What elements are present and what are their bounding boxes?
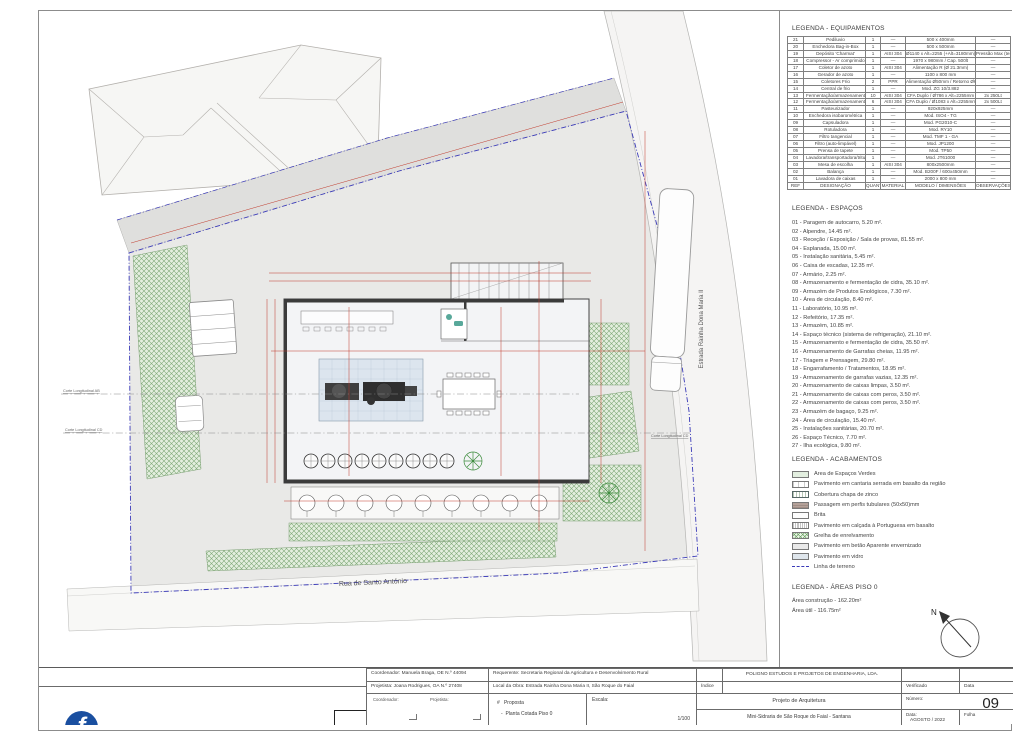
finish-label: Cobertura chapa de zinco bbox=[814, 492, 878, 498]
drawing-sheet: Rua de Santo António Estrada Rainha Dona… bbox=[38, 10, 1012, 731]
equipment-designation: Pediluvio bbox=[804, 37, 866, 44]
section-label-cd-right: Corte Longitudinal CD bbox=[651, 434, 689, 438]
legend-areas-title: LEGENDA - ÁREAS PISO 0 bbox=[792, 584, 878, 591]
equipment-designation: Pasteurizador bbox=[804, 106, 866, 113]
equipment-ref: 02 bbox=[788, 169, 804, 176]
equipment-table-row: 01 Lavadora de caixas 1 — 2000 x 800 mm … bbox=[788, 176, 1011, 183]
space-item: 16 - Armazenamento de Garrafas cheias, 1… bbox=[792, 348, 1007, 357]
finish-item: Pavimento em vidro bbox=[792, 551, 1007, 561]
finish-label: Área de Espaços Verdes bbox=[814, 471, 876, 477]
finish-label: Pavimento em calçada à Portuguesa em bas… bbox=[814, 523, 934, 529]
finish-swatch bbox=[792, 502, 809, 509]
north-compass: N bbox=[929, 606, 991, 666]
equipment-model: Mod. B200F / 600x450mm bbox=[906, 169, 976, 176]
legend-equipment-title: LEGENDA - EQUIPAMENTOS bbox=[792, 25, 885, 32]
equipment-quantity: 1 bbox=[866, 86, 881, 93]
equipment-table-row: 17 Coletor de azoto 1 AISI 304 Alimentaç… bbox=[788, 65, 1011, 72]
equipment-model: Mod. TMF 1 - GA bbox=[906, 134, 976, 141]
equipment-table-row: 09 Capsuladora 1 — Mod. PG2010-C — bbox=[788, 120, 1011, 127]
equipment-table-row: 03 Mesa de escolha 1 AISI 304 800x2500mm… bbox=[788, 162, 1011, 169]
sheet-number: 09 bbox=[982, 695, 999, 709]
date-header-cell: Data bbox=[959, 681, 1013, 693]
equipment-table-row: 08 Rotuladora 1 — Mod. RY10 — bbox=[788, 127, 1011, 134]
equipment-quantity: 1 bbox=[866, 72, 881, 79]
equipment-ref: 11 bbox=[788, 106, 804, 113]
finish-swatch bbox=[792, 491, 809, 498]
equipment-ref: 01 bbox=[788, 176, 804, 183]
finish-swatch bbox=[792, 566, 809, 567]
equipment-model: CFA Duplo / Ø1083 x Alt=2255mm bbox=[906, 99, 976, 106]
equipment-material: — bbox=[881, 72, 906, 79]
equipment-model: 1970 x 980mm / Cap. 500lt bbox=[906, 58, 976, 65]
equipment-observations: — bbox=[976, 86, 1011, 93]
equipment-observations: — bbox=[976, 106, 1011, 113]
parked-truck bbox=[189, 300, 237, 357]
street-label-right: Estrada Rainha Dona Maria II bbox=[699, 289, 705, 368]
equipment-designation: Fermentação/armazenamento bbox=[804, 93, 866, 100]
signatures-cell: Coordenador: Projetista: bbox=[366, 693, 488, 725]
equipment-material: — bbox=[881, 44, 906, 51]
equipment-table-row: 10 Enchedora isobarométrica 1 — Mod. ISO… bbox=[788, 113, 1011, 120]
finish-item: Pavimento em betão Aparente envernizado bbox=[792, 541, 1007, 551]
space-item: 23 - Armazém de bagaço, 9.25 m². bbox=[792, 408, 1007, 417]
folha-cell: Folha bbox=[959, 709, 1013, 725]
firm-name-cell: POLIGNO ESTUDOS E PROJETOS DE ENGENHARIA… bbox=[722, 668, 901, 681]
section-label-ab: Corte Longitudinal AB bbox=[63, 389, 100, 393]
equipment-material: — bbox=[881, 86, 906, 93]
space-item: 03 - Receção / Exposição / Sala de prova… bbox=[792, 236, 1007, 245]
equipment-model: Mod. TP50 bbox=[906, 148, 976, 155]
equipment-designation: Rotuladora bbox=[804, 127, 866, 134]
poligno-logo-icon: f bbox=[65, 711, 98, 725]
spaces-list: 01 - Paragem de autocarro, 5.20 m². 02 -… bbox=[792, 219, 1007, 451]
equipment-table-row: 06 Filtro (auto-limpável) 1 — Mod. JP120… bbox=[788, 141, 1011, 148]
equipment-observations: — bbox=[976, 148, 1011, 155]
space-item: 24 - Área de circulação, 15.40 m². bbox=[792, 417, 1007, 426]
equipment-quantity: 6 bbox=[866, 99, 881, 106]
equipment-model: CFA Duplo / Ø786 x Alt=2255mm bbox=[906, 93, 976, 100]
proposal-line: # Proposta bbox=[497, 700, 524, 706]
equipment-designation: Depósito 'Charmat' bbox=[804, 51, 866, 58]
equipment-table-row: 14 Central de frio 1 — Mod. ZG 10/3.882 … bbox=[788, 86, 1011, 93]
date-value: AGOSTO / 2022 bbox=[910, 718, 945, 723]
space-item: 21 - Armazenamento de caixas com peros, … bbox=[792, 391, 1007, 400]
applicant-cell: Requerente: Secretaria Regional da Agric… bbox=[488, 668, 696, 681]
finish-label: Linha de terreno bbox=[814, 564, 855, 570]
equipment-ref: 08 bbox=[788, 127, 804, 134]
equipment-material: — bbox=[881, 155, 906, 162]
space-item: 15 - Armazenamento e fermentação de cidr… bbox=[792, 339, 1007, 348]
finish-label: Grelha de enrelvamento bbox=[814, 533, 874, 539]
equipment-quantity: 1 bbox=[866, 65, 881, 72]
space-item: 18 - Engarrafamento / Tratamentos, 18.95… bbox=[792, 365, 1007, 374]
equipment-ref: 14 bbox=[788, 86, 804, 93]
equipment-ref: 12 bbox=[788, 99, 804, 106]
space-item: 19 - Armazenamento de garrafas vazias, 1… bbox=[792, 374, 1007, 383]
legend-finishes-title: LEGENDA - ACABAMENTOS bbox=[792, 456, 882, 463]
equipment-quantity: 1 bbox=[866, 113, 881, 120]
space-item: 07 - Armário, 2.25 m². bbox=[792, 271, 1007, 280]
equipment-material: PPR bbox=[881, 79, 906, 86]
legend-column: LEGENDA - EQUIPAMENTOS 21 Pediluvio 1 — … bbox=[779, 11, 1012, 667]
equipment-designation: Fermentação/armazenamento bbox=[804, 99, 866, 106]
folha-label: Folha bbox=[964, 712, 975, 717]
qr-code bbox=[334, 710, 366, 725]
equipment-table-header: REF DESIGNAÇÃO QUANT MATERIAL MODELO / D… bbox=[788, 183, 1011, 190]
spacer-cell bbox=[722, 681, 901, 693]
equipment-designation: Compressor - Ar comprimido bbox=[804, 58, 866, 65]
equipment-observations: — bbox=[976, 162, 1011, 169]
finish-item: Brita bbox=[792, 510, 1007, 520]
equipment-material: — bbox=[881, 134, 906, 141]
equipment-material: — bbox=[881, 37, 906, 44]
number-label: Número: bbox=[906, 696, 923, 701]
equipment-observations: 2x 500Lt bbox=[976, 99, 1011, 106]
equipment-table-row: 20 Enchedora Bag-in-Box 1 — 500 x 500mm … bbox=[788, 44, 1011, 51]
equipment-table-row: 15 Coletores Frio 2 PPR Alimentação Ø50m… bbox=[788, 79, 1011, 86]
equipment-designation: Mesa de escolha bbox=[804, 162, 866, 169]
equipment-model: Mod. RY10 bbox=[906, 127, 976, 134]
equipment-designation: Prensa de tapete bbox=[804, 148, 866, 155]
designer-cell: Projetista: Joana Rodrigues, OA N.º 2740… bbox=[366, 681, 488, 693]
finish-swatch bbox=[792, 471, 809, 478]
equipment-designation: Gerador de azoto bbox=[804, 72, 866, 79]
space-item: 11 - Laboratório, 10.95 m². bbox=[792, 305, 1007, 314]
space-item: 17 - Triagem e Prensagem, 29.80 m². bbox=[792, 357, 1007, 366]
title-block: f POLIGNO ESTUDOS E PROJETOS DE ENGENHAR… bbox=[39, 667, 1013, 724]
signature-corner-mark bbox=[473, 714, 481, 720]
equipment-quantity: 2 bbox=[866, 79, 881, 86]
finish-label: Brita bbox=[814, 512, 826, 518]
equipment-designation: Coletores Frio bbox=[804, 79, 866, 86]
verified-cell: Verificado bbox=[901, 681, 959, 693]
parked-car bbox=[175, 395, 204, 431]
equipment-table: 21 Pediluvio 1 — 500 x 400mm — 20 Enched… bbox=[787, 36, 1011, 190]
equipment-ref: 19 bbox=[788, 51, 804, 58]
equipment-quantity: 1 bbox=[866, 162, 881, 169]
index-cell: Índice bbox=[696, 681, 722, 693]
equipment-ref: 18 bbox=[788, 58, 804, 65]
equipment-material: AISI 304 bbox=[881, 99, 906, 106]
finish-swatch bbox=[792, 481, 809, 488]
project-name-cell: Mini-Sidraria de São Roque do Faial - Sa… bbox=[696, 709, 901, 725]
space-item: 08 - Armazenamento e fermentação de cidr… bbox=[792, 279, 1007, 288]
equipment-table-row: 02 Balança 1 — Mod. B200F / 600x450mm — bbox=[788, 169, 1011, 176]
equipment-table-row: 18 Compressor - Ar comprimido 1 — 1970 x… bbox=[788, 58, 1011, 65]
finish-label: Pavimento em cantaria serrada em basalto… bbox=[814, 481, 946, 487]
space-item: 01 - Paragem de autocarro, 5.20 m². bbox=[792, 219, 1007, 228]
equipment-observations: — bbox=[976, 65, 1011, 72]
finish-label: Pavimento em betão Aparente envernizado bbox=[814, 543, 921, 549]
signature-designer-label: Projetista: bbox=[430, 697, 449, 702]
number-cell: Número: 09 bbox=[901, 693, 1013, 709]
date-label: Data: bbox=[906, 712, 917, 717]
scale-value: 1/100 bbox=[677, 716, 690, 722]
coordinator-cell: Coordenador: Manuela Braga, OE N.º 44094 bbox=[366, 668, 488, 681]
space-item: 02 - Alpendre, 14.45 m². bbox=[792, 228, 1007, 237]
space-item: 26 - Espaço Técnico, 7.70 m². bbox=[792, 434, 1007, 443]
proposal-label: Proposta bbox=[504, 700, 524, 706]
drawing-name-cell: # Proposta - Planta Cotada Piso 0 bbox=[488, 693, 586, 725]
scale-cell: Escala: 1/100 bbox=[586, 693, 696, 725]
equipment-designation: Lavadora de caixas bbox=[804, 176, 866, 183]
space-item: 20 - Armazenamento de caixas limpas, 3.5… bbox=[792, 382, 1007, 391]
garden-feature bbox=[599, 483, 619, 503]
scale-label: Escala: bbox=[592, 697, 608, 703]
finish-swatch bbox=[792, 532, 809, 539]
equipment-model: 920x925mm bbox=[906, 106, 976, 113]
equipment-material: AISI 304 bbox=[881, 65, 906, 72]
equipment-designation: Filtro (auto-limpável) bbox=[804, 141, 866, 148]
equipment-model: 1100 x 800 mm bbox=[906, 72, 976, 79]
equipment-table-row: 13 Fermentação/armazenamento 10 AISI 304… bbox=[788, 93, 1011, 100]
equipment-observations: — bbox=[976, 37, 1011, 44]
spacer-cell bbox=[901, 668, 959, 681]
finish-item: Área de Espaços Verdes bbox=[792, 469, 1007, 479]
equipment-designation: Capsuladora bbox=[804, 120, 866, 127]
equipment-model: Mod. ISO4 - TG bbox=[906, 113, 976, 120]
legend-spaces-title: LEGENDA - ESPAÇOS bbox=[792, 205, 863, 212]
equipment-designation: Central de frio bbox=[804, 86, 866, 93]
equipment-observations: — bbox=[976, 44, 1011, 51]
equipment-ref: 20 bbox=[788, 44, 804, 51]
equipment-model: Alimentação Ø50mm / Retorno Ø63mm bbox=[906, 79, 976, 86]
project-type-cell: Projeto de Arquitetura bbox=[696, 693, 901, 709]
equipment-ref: 09 bbox=[788, 120, 804, 127]
finish-swatch bbox=[792, 553, 809, 560]
equipment-model: 500 x 500mm bbox=[906, 44, 976, 51]
drawing-title: Planta Cotada Piso 0 bbox=[505, 711, 552, 717]
area-construction: Área construção - 162.20m² bbox=[792, 597, 942, 607]
equipment-table-row: 07 Filtro tangencial 1 — Mod. TMF 1 - GA… bbox=[788, 134, 1011, 141]
finishes-list: Área de Espaços Verdes Pavimento em cant… bbox=[792, 469, 1007, 572]
equipment-designation: Filtro tangencial bbox=[804, 134, 866, 141]
equipment-material: AISI 304 bbox=[881, 51, 906, 58]
equipment-designation: Enchedora Bag-in-Box bbox=[804, 44, 866, 51]
equipment-model: Mod. JT61000 bbox=[906, 155, 976, 162]
spacer-cell bbox=[959, 668, 1013, 681]
finish-swatch bbox=[792, 543, 809, 550]
finish-item: Pavimento em cantaria serrada em basalto… bbox=[792, 479, 1007, 489]
equipment-quantity: 1 bbox=[866, 44, 881, 51]
equipment-material: — bbox=[881, 113, 906, 120]
equipment-quantity: 1 bbox=[866, 51, 881, 58]
equipment-ref: 06 bbox=[788, 141, 804, 148]
equipment-observations: — bbox=[976, 127, 1011, 134]
equipment-ref: 04 bbox=[788, 155, 804, 162]
space-item: 25 - Instalações sanitárias, 20.70 m². bbox=[792, 425, 1007, 434]
equipment-table-row: 05 Prensa de tapete 1 — Mod. TP50 — bbox=[788, 148, 1011, 155]
spiral-feature bbox=[464, 452, 482, 470]
space-item: 13 - Armazém, 10.85 m². bbox=[792, 322, 1007, 331]
space-item: 12 - Refeitório, 17.35 m². bbox=[792, 314, 1007, 323]
equipment-model: 500 x 400mm bbox=[906, 37, 976, 44]
equipment-designation: Balança bbox=[804, 169, 866, 176]
equipment-material: — bbox=[881, 120, 906, 127]
equipment-quantity: 1 bbox=[866, 120, 881, 127]
equipment-observations: — bbox=[976, 141, 1011, 148]
areas-block: Área construção - 162.20m² Área útil - 1… bbox=[792, 597, 942, 616]
spacer-cell bbox=[696, 668, 722, 681]
finish-item: Passagem em perfis tubulares (50x50)mm bbox=[792, 500, 1007, 510]
equipment-model: Mod. PG2010-C bbox=[906, 120, 976, 127]
equipment-ref: 16 bbox=[788, 72, 804, 79]
equipment-table-row: 12 Fermentação/armazenamento 6 AISI 304 … bbox=[788, 99, 1011, 106]
equipment-model: Mod. JP1200 bbox=[906, 141, 976, 148]
finish-label: Passagem em perfis tubulares (50x50)mm bbox=[814, 502, 919, 508]
equipment-observations: — bbox=[976, 58, 1011, 65]
equipment-quantity: 10 bbox=[866, 93, 881, 100]
equipment-observations: — bbox=[976, 113, 1011, 120]
building bbox=[284, 299, 589, 483]
equipment-material: — bbox=[881, 176, 906, 183]
equipment-model: 800x2500mm bbox=[906, 162, 976, 169]
equipment-quantity: 1 bbox=[866, 141, 881, 148]
signature-corner-mark bbox=[409, 714, 417, 720]
site-location-cell: Local da Obra: Estrada Rainha Dona Maria… bbox=[488, 681, 696, 693]
space-item: 09 - Armazém de Produtos Enológicos, 7.3… bbox=[792, 288, 1007, 297]
signature-coordinator-label: Coordenador: bbox=[373, 697, 399, 702]
equipment-observations: — bbox=[976, 72, 1011, 79]
equipment-observations: — bbox=[976, 134, 1011, 141]
equipment-material: — bbox=[881, 169, 906, 176]
north-letter: N bbox=[931, 608, 937, 617]
equipment-quantity: 1 bbox=[866, 106, 881, 113]
space-item: 27 - Ilha ecológica, 9.80 m². bbox=[792, 442, 1007, 451]
equipment-observations: — bbox=[976, 155, 1011, 162]
equipment-material: — bbox=[881, 141, 906, 148]
equipment-quantity: 1 bbox=[866, 37, 881, 44]
equipment-model: Mod. ZG 10/3.882 bbox=[906, 86, 976, 93]
equipment-material: — bbox=[881, 58, 906, 65]
equipment-ref: 21 bbox=[788, 37, 804, 44]
equipment-designation: Enchedora isobarométrica bbox=[804, 113, 866, 120]
space-item: 22 - Armazenamento de caixas com peros, … bbox=[792, 399, 1007, 408]
equipment-quantity: 1 bbox=[866, 134, 881, 141]
space-item: 04 - Esplanada, 15.00 m². bbox=[792, 245, 1007, 254]
equipment-table-row: 16 Gerador de azoto 1 — 1100 x 800 mm — bbox=[788, 72, 1011, 79]
equipment-ref: 03 bbox=[788, 162, 804, 169]
space-item: 10 - Área de circulação, 8.40 m². bbox=[792, 296, 1007, 305]
finish-item: Linha de terreno bbox=[792, 562, 1007, 572]
section-label-cd: Corte Longitudinal CD bbox=[65, 428, 103, 432]
finish-item: Grelha de enrelvamento bbox=[792, 531, 1007, 541]
equipment-ref: 13 bbox=[788, 93, 804, 100]
finish-swatch bbox=[792, 512, 809, 519]
equipment-quantity: 1 bbox=[866, 127, 881, 134]
space-item: 05 - Instalação sanitária, 5.45 m². bbox=[792, 253, 1007, 262]
equipment-ref: 05 bbox=[788, 148, 804, 155]
equipment-model: 2000 x 800 mm bbox=[906, 176, 976, 183]
equipment-quantity: 1 bbox=[866, 58, 881, 65]
equipment-quantity: 1 bbox=[866, 148, 881, 155]
area-useful: Área útil - 116.75m² bbox=[792, 607, 942, 617]
finish-label: Pavimento em vidro bbox=[814, 554, 863, 560]
equipment-ref: 10 bbox=[788, 113, 804, 120]
equipment-observations: 2x 250Lt bbox=[976, 93, 1011, 100]
equipment-table-row: 11 Pasteurizador 1 — 920x925mm — bbox=[788, 106, 1011, 113]
equipment-table-row: 04 Lavadora/transportadora/trituradora 1… bbox=[788, 155, 1011, 162]
equipment-observations: — bbox=[976, 120, 1011, 127]
drawing-sheet-page: Rua de Santo António Estrada Rainha Dona… bbox=[0, 0, 1024, 738]
equipment-model: Alimentação R (Ø 21.3mm) bbox=[906, 65, 976, 72]
equipment-ref: 15 bbox=[788, 79, 804, 86]
drawing-mark: - bbox=[501, 711, 503, 717]
finish-item: Pavimento em calçada à Portuguesa em bas… bbox=[792, 520, 1007, 530]
equipment-quantity: 1 bbox=[866, 155, 881, 162]
equipment-material: — bbox=[881, 127, 906, 134]
equipment-material: AISI 304 bbox=[881, 93, 906, 100]
equipment-table-row: 19 Depósito 'Charmat' 1 AISI 304 Ø1140 x… bbox=[788, 51, 1011, 58]
equipment-quantity: 1 bbox=[866, 176, 881, 183]
equipment-designation: Lavadora/transportadora/trituradora bbox=[804, 155, 866, 162]
proposal-mark: # bbox=[497, 700, 500, 706]
equipment-ref: 07 bbox=[788, 134, 804, 141]
date-cell: Data: AGOSTO / 2022 bbox=[901, 709, 959, 725]
equipment-ref: 17 bbox=[788, 65, 804, 72]
drawing-line: - Planta Cotada Piso 0 bbox=[501, 711, 552, 717]
equipment-observations: — bbox=[976, 169, 1011, 176]
equipment-observations: — bbox=[976, 79, 1011, 86]
equipment-material: — bbox=[881, 106, 906, 113]
pergola-row bbox=[291, 487, 559, 519]
finish-item: Cobertura chapa de zinco bbox=[792, 490, 1007, 500]
equipment-table-row: 21 Pediluvio 1 — 500 x 400mm — bbox=[788, 37, 1011, 44]
equipment-material: AISI 304 bbox=[881, 162, 906, 169]
equipment-observations: — bbox=[976, 176, 1011, 183]
equipment-model: Ø1140 x Alt=2255 (+Alt=3180mm) bbox=[906, 51, 976, 58]
company-cell: f POLIGNO ESTUDOS E PROJETOS DE ENGENHAR… bbox=[39, 686, 366, 725]
space-item: 14 - Espaço técnico (sistema de refriger… bbox=[792, 331, 1007, 340]
counter bbox=[301, 311, 393, 324]
equipment-quantity: 1 bbox=[866, 169, 881, 176]
equipment-designation: Coletor de azoto bbox=[804, 65, 866, 72]
equipment-observations: Pressão Max (teste) bbox=[976, 51, 1011, 58]
equipment-material: — bbox=[881, 148, 906, 155]
space-item: 06 - Caixa de escadas, 12.35 m². bbox=[792, 262, 1007, 271]
finish-swatch bbox=[792, 522, 809, 529]
